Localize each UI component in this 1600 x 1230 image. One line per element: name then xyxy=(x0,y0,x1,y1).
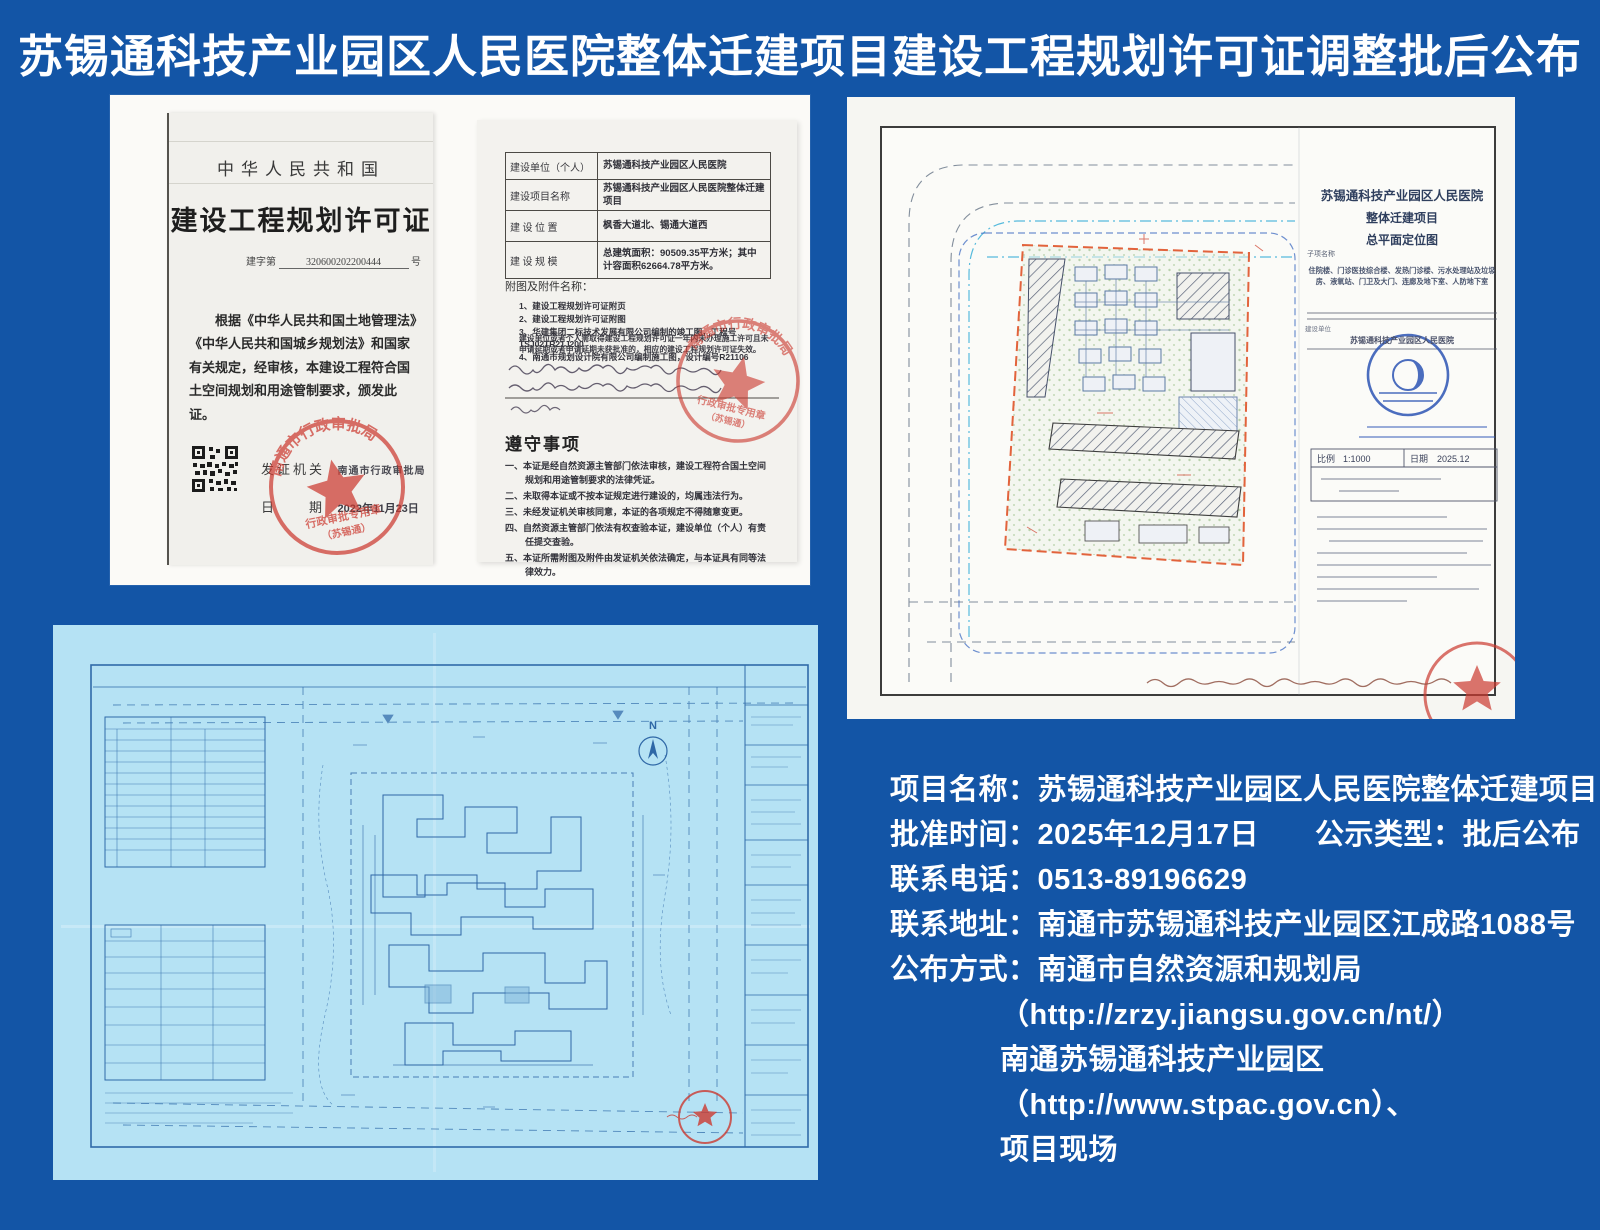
blueprint-drawing: N xyxy=(53,625,818,1180)
row-label: 建设单位（个人） xyxy=(506,153,598,179)
client-value: 苏锡通科技产业园区人民医院 xyxy=(1305,335,1499,346)
info-label: 公示类型： xyxy=(1315,819,1463,851)
info-value: 苏锡通科技产业园区人民医院整体迁建项目 xyxy=(1038,774,1599,806)
info-row-publish-method: 公布方式：南通市自然资源和规划局 xyxy=(890,948,1530,993)
row-value: 苏锡通科技产业园区人民医院整体迁建项目 xyxy=(598,180,770,210)
compliance-item: 五、本证所需附图及附件由发证机关依法确定，与本证具有同等法律效力。 xyxy=(505,552,773,580)
row-value: 枫香大道北、锡通大道西 xyxy=(598,211,770,241)
info-row-site: 项目现场 xyxy=(890,1128,1530,1173)
permit-serial: 建字第 320600202200444 号 xyxy=(246,253,421,269)
compliance-list: 一、本证是经自然资源主管部门依法审核，建设工程符合国土空间规划和用途管制要求的法… xyxy=(505,460,773,582)
attachments-label: 附图及附件名称： xyxy=(505,278,593,294)
date-value: 2025.12 xyxy=(1437,454,1470,464)
permit-scan-panel: 中华人民共和国 建设工程规划许可证 建字第 320600202200444 号 … xyxy=(110,95,810,585)
subitem-label: 子项名称 xyxy=(1307,249,1335,259)
info-value: 南通市苏锡通科技产业园区江成路1088号 xyxy=(1038,909,1577,941)
permit-nation-heading: 中华人民共和国 xyxy=(169,155,433,180)
permit-table: 建设单位（个人） 苏锡通科技产业园区人民医院 建设项目名称 苏锡通科技产业园区人… xyxy=(505,152,771,279)
client-block: 建设单位 苏锡通科技产业园区人民医院 xyxy=(1305,323,1499,346)
permit-body-text: 根据《中华人民共和国土地管理法》《中华人民共和国城乡规划法》和国家有关规定，经审… xyxy=(189,309,420,426)
info-label: 批准时间： xyxy=(890,819,1038,851)
official-seal-red: 南通市行政审批局 行政审批专用章 （苏锡通） xyxy=(673,316,803,446)
drawing-title-line: 整体迁建项目 xyxy=(1299,207,1505,229)
permit-serial-suffix: 号 xyxy=(411,257,421,268)
date-label: 日期 xyxy=(1410,454,1428,464)
info-row-phone: 联系电话：0513-89196629 xyxy=(890,858,1530,903)
compliance-item: 一、本证是经自然资源主管部门依法审核，建设工程符合国土空间规划和用途管制要求的法… xyxy=(505,460,773,488)
compliance-item: 三、未经发证机关审核同意，本证的各项规定不得随意变更。 xyxy=(505,506,773,520)
info-url: （http://www.stpac.gov.cn）、 xyxy=(1000,1089,1416,1121)
info-row-url-1: （http://zrzy.jiangsu.gov.cn/nt/） xyxy=(890,993,1530,1038)
permit-page-detail: 建设单位（个人） 苏锡通科技产业园区人民医院 建设项目名称 苏锡通科技产业园区人… xyxy=(477,120,797,562)
info-value: 南通苏锡通科技产业园区 xyxy=(1000,1044,1325,1076)
scan-rule-line xyxy=(169,183,433,184)
info-value: 2025年12月17日 xyxy=(1038,819,1260,851)
permit-serial-prefix: 建字第 xyxy=(246,257,276,268)
table-row: 建设单位（个人） 苏锡通科技产业园区人民医院 xyxy=(506,153,770,180)
page-title: 苏锡通科技产业园区人民医院整体迁建项目建设工程规划许可证调整批后公布 xyxy=(0,20,1600,85)
compliance-item: 二、未取得本证或不按本证规定进行建设的，均属违法行为。 xyxy=(505,490,773,504)
compliance-item: 四、自然资源主管部门依法有权查验本证，建设单位（个人）有责任提交查验。 xyxy=(505,522,773,550)
site-plan-panel: 比例 1:1000 日期 2025.12 苏锡通科技产业园区人民医院 整体迁建项… xyxy=(847,97,1515,719)
official-seal-red: 南通市行政审批局 行政审批专用章 （苏锡通） xyxy=(265,415,409,559)
announcement-page: { "page": { "title": "苏锡通科技产业园区人民医院整体迁建项… xyxy=(0,0,1600,1230)
blueprint-panel: N xyxy=(53,625,818,1180)
permit-serial-number: 320600202200444 xyxy=(279,257,409,269)
info-label: 公布方式： xyxy=(890,954,1038,986)
drawing-title-line: 苏锡通科技产业园区人民医院 xyxy=(1299,185,1505,207)
scale-value: 1:1000 xyxy=(1343,454,1371,464)
row-value: 苏锡通科技产业园区人民医院 xyxy=(598,153,770,179)
client-label: 建设单位 xyxy=(1305,323,1499,333)
qr-code xyxy=(191,445,239,493)
subitem-list: 住院楼、门诊医技综合楼、发热门诊楼、污水处理站及垃圾房、液氧站、门卫及大门、连廊… xyxy=(1305,265,1499,287)
table-row: 建设项目名称 苏锡通科技产业园区人民医院整体迁建项目 xyxy=(506,180,770,211)
table-row: 建 设 位 置 枫香大道北、锡通大道西 xyxy=(506,211,770,242)
attachment-item: 1、建设工程规划许可证附页 xyxy=(519,300,779,313)
row-label: 建 设 位 置 xyxy=(506,211,598,241)
info-label: 联系电话： xyxy=(890,864,1038,896)
drawing-title-line: 总平面定位图 xyxy=(1299,229,1505,251)
permit-page-cover: 中华人民共和国 建设工程规划许可证 建字第 320600202200444 号 … xyxy=(167,113,433,565)
permit-doc-title: 建设工程规划许可证 xyxy=(169,199,433,238)
info-value: 项目现场 xyxy=(1000,1134,1118,1166)
info-row-approval: 批准时间：2025年12月17日公示类型：批后公布 xyxy=(890,813,1530,858)
info-value: 南通市自然资源和规划局 xyxy=(1038,954,1363,986)
project-info-block: 项目名称：苏锡通科技产业园区人民医院整体迁建项目 批准时间：2025年12月17… xyxy=(890,768,1530,1173)
row-value: 总建筑面积：90509.35平方米；其中计容面积62664.78平方米。 xyxy=(598,242,770,278)
scale-label: 比例 xyxy=(1317,453,1335,464)
info-row-project-name: 项目名称：苏锡通科技产业园区人民医院整体迁建项目 xyxy=(890,768,1530,813)
info-row-org-2: 南通苏锡通科技产业园区 xyxy=(890,1038,1530,1083)
table-row: 建 设 规 模 总建筑面积：90509.35平方米；其中计容面积62664.78… xyxy=(506,242,770,278)
info-value: 0513-89196629 xyxy=(1038,864,1248,896)
info-label: 项目名称： xyxy=(890,774,1038,806)
row-label: 建 设 规 模 xyxy=(506,242,598,278)
info-value: 批后公布 xyxy=(1463,819,1581,851)
info-row-address: 联系地址：南通市苏锡通科技产业园区江成路1088号 xyxy=(890,903,1530,948)
drawing-title-block: 苏锡通科技产业园区人民医院 整体迁建项目 总平面定位图 xyxy=(1299,185,1505,251)
row-label: 建设项目名称 xyxy=(506,180,598,210)
info-label: 联系地址： xyxy=(890,909,1038,941)
svg-text:南通市行政审批局: 南通市行政审批局 xyxy=(265,415,386,482)
north-label: N xyxy=(649,720,657,732)
seal-arc-text: 南通市行政审批局 xyxy=(265,415,386,482)
info-url: （http://zrzy.jiangsu.gov.cn/nt/） xyxy=(1000,999,1461,1031)
compliance-title: 遵守事项 xyxy=(505,430,581,455)
scan-rule-line xyxy=(169,141,433,142)
info-row-url-2: （http://www.stpac.gov.cn）、 xyxy=(890,1083,1530,1128)
